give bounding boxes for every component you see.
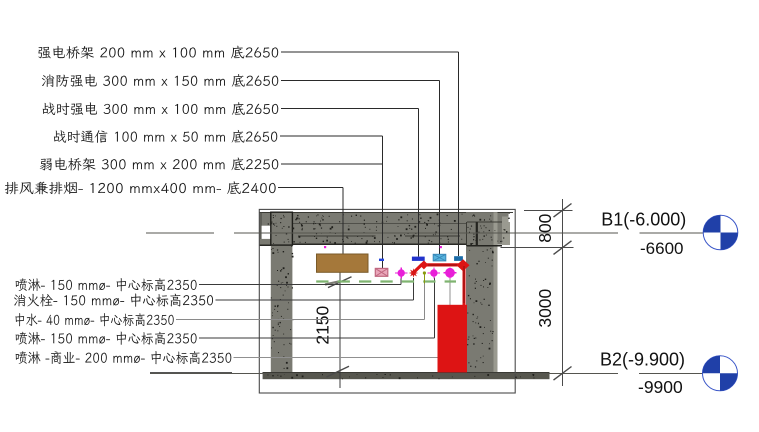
svg-text:-9900: -9900 <box>638 377 683 397</box>
svg-text:-6600: -6600 <box>640 239 683 258</box>
svg-text:B2(-9.900): B2(-9.900) <box>600 350 685 370</box>
svg-text:2150: 2150 <box>312 305 332 344</box>
svg-text:800: 800 <box>535 213 555 242</box>
svg-text:3000: 3000 <box>535 288 555 327</box>
svg-text:B1(-6.000): B1(-6.000) <box>601 209 686 229</box>
